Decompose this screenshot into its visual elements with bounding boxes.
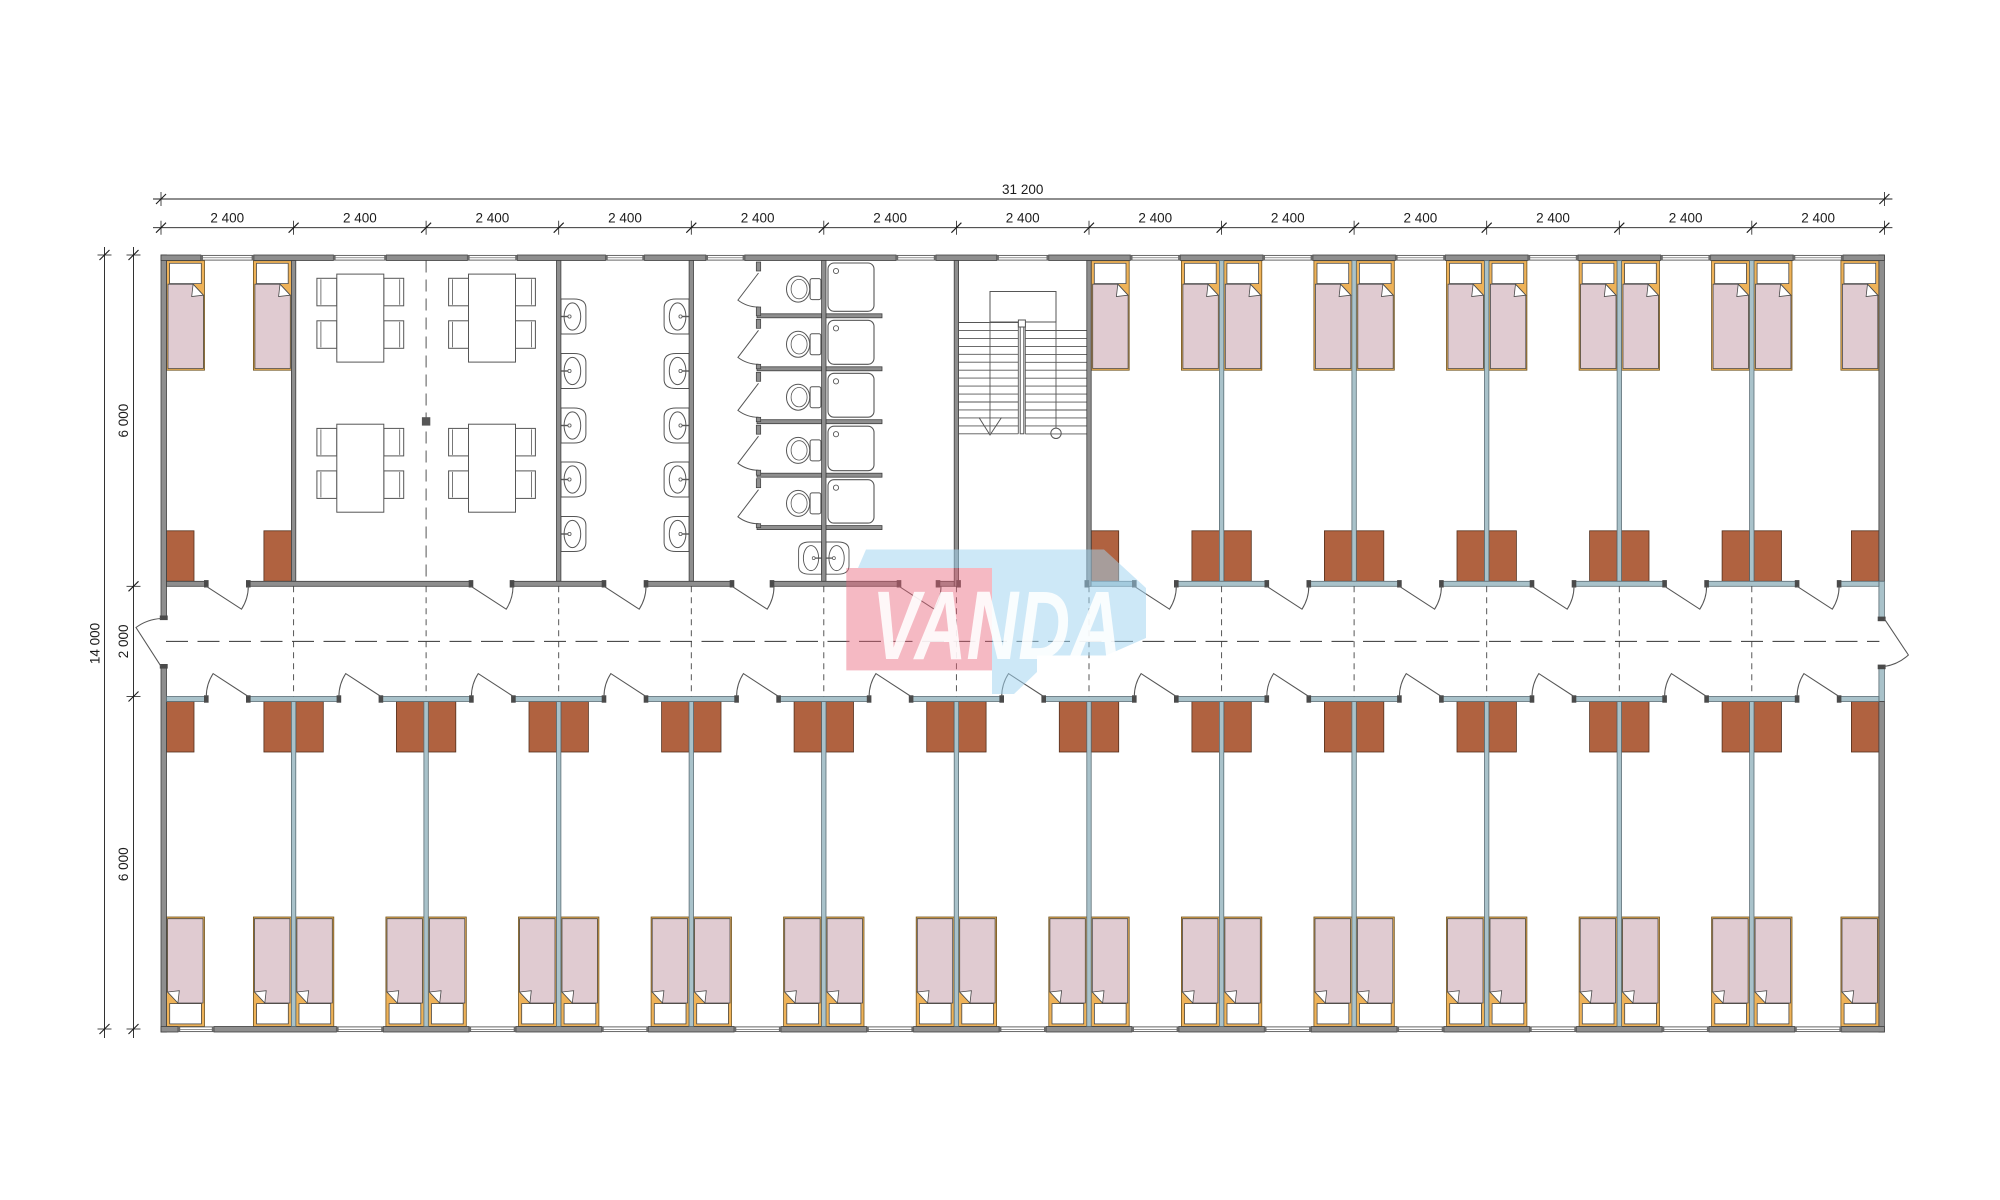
svg-text:2 400: 2 400	[210, 211, 244, 226]
svg-text:2 400: 2 400	[741, 211, 775, 226]
svg-text:2 400: 2 400	[1138, 211, 1172, 226]
svg-text:2 400: 2 400	[1006, 211, 1040, 226]
svg-text:2 400: 2 400	[873, 211, 907, 226]
svg-text:6 000: 6 000	[116, 847, 131, 881]
svg-text:14 000: 14 000	[88, 623, 103, 664]
svg-text:2 400: 2 400	[1404, 211, 1438, 226]
svg-text:2 000: 2 000	[116, 625, 131, 659]
svg-text:2 400: 2 400	[1536, 211, 1570, 226]
svg-text:2 400: 2 400	[1669, 211, 1703, 226]
svg-text:6 000: 6 000	[116, 404, 131, 438]
svg-text:2 400: 2 400	[1271, 211, 1305, 226]
svg-text:2 400: 2 400	[476, 211, 510, 226]
svg-text:2 400: 2 400	[1801, 211, 1835, 226]
svg-text:VANDA: VANDA	[872, 573, 1122, 681]
svg-text:2 400: 2 400	[343, 211, 377, 226]
svg-text:2 400: 2 400	[608, 211, 642, 226]
svg-text:31 200: 31 200	[1002, 182, 1043, 197]
